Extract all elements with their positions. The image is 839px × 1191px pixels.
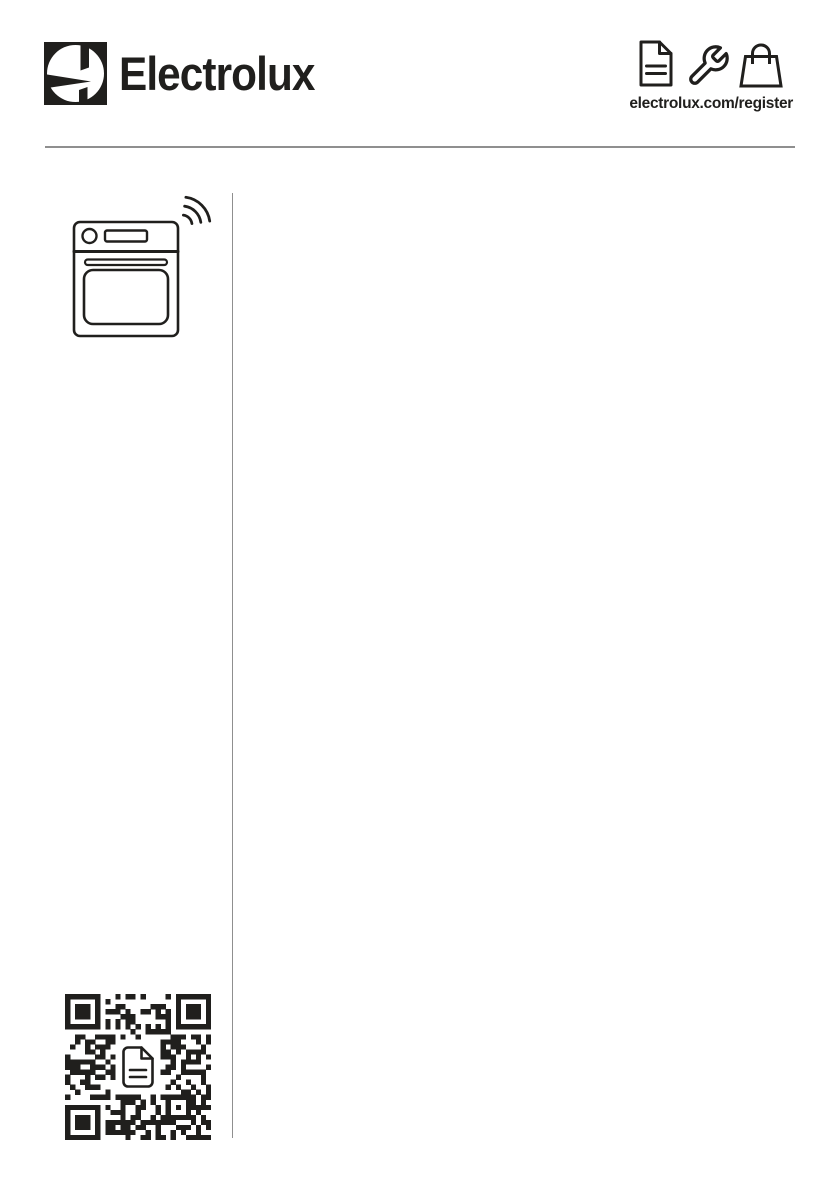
qr-code — [65, 994, 211, 1140]
document-icon — [638, 40, 674, 87]
shopping-bag-icon — [737, 40, 785, 88]
column-divider — [232, 193, 233, 1138]
wifi-waves-icon — [183, 197, 209, 223]
document-icon — [122, 1046, 154, 1088]
oven-with-wifi-icon — [72, 194, 212, 340]
qr-center-badge — [116, 1040, 160, 1093]
manual-cover-page: Electrolux electrolux.com/register — [0, 0, 839, 1191]
wrench-icon — [684, 43, 732, 89]
register-url-text: electrolux.com/register — [629, 95, 793, 113]
brand-wordmark: Electrolux — [119, 50, 315, 97]
header-divider — [45, 146, 795, 148]
electrolux-symbol-icon — [44, 42, 107, 105]
